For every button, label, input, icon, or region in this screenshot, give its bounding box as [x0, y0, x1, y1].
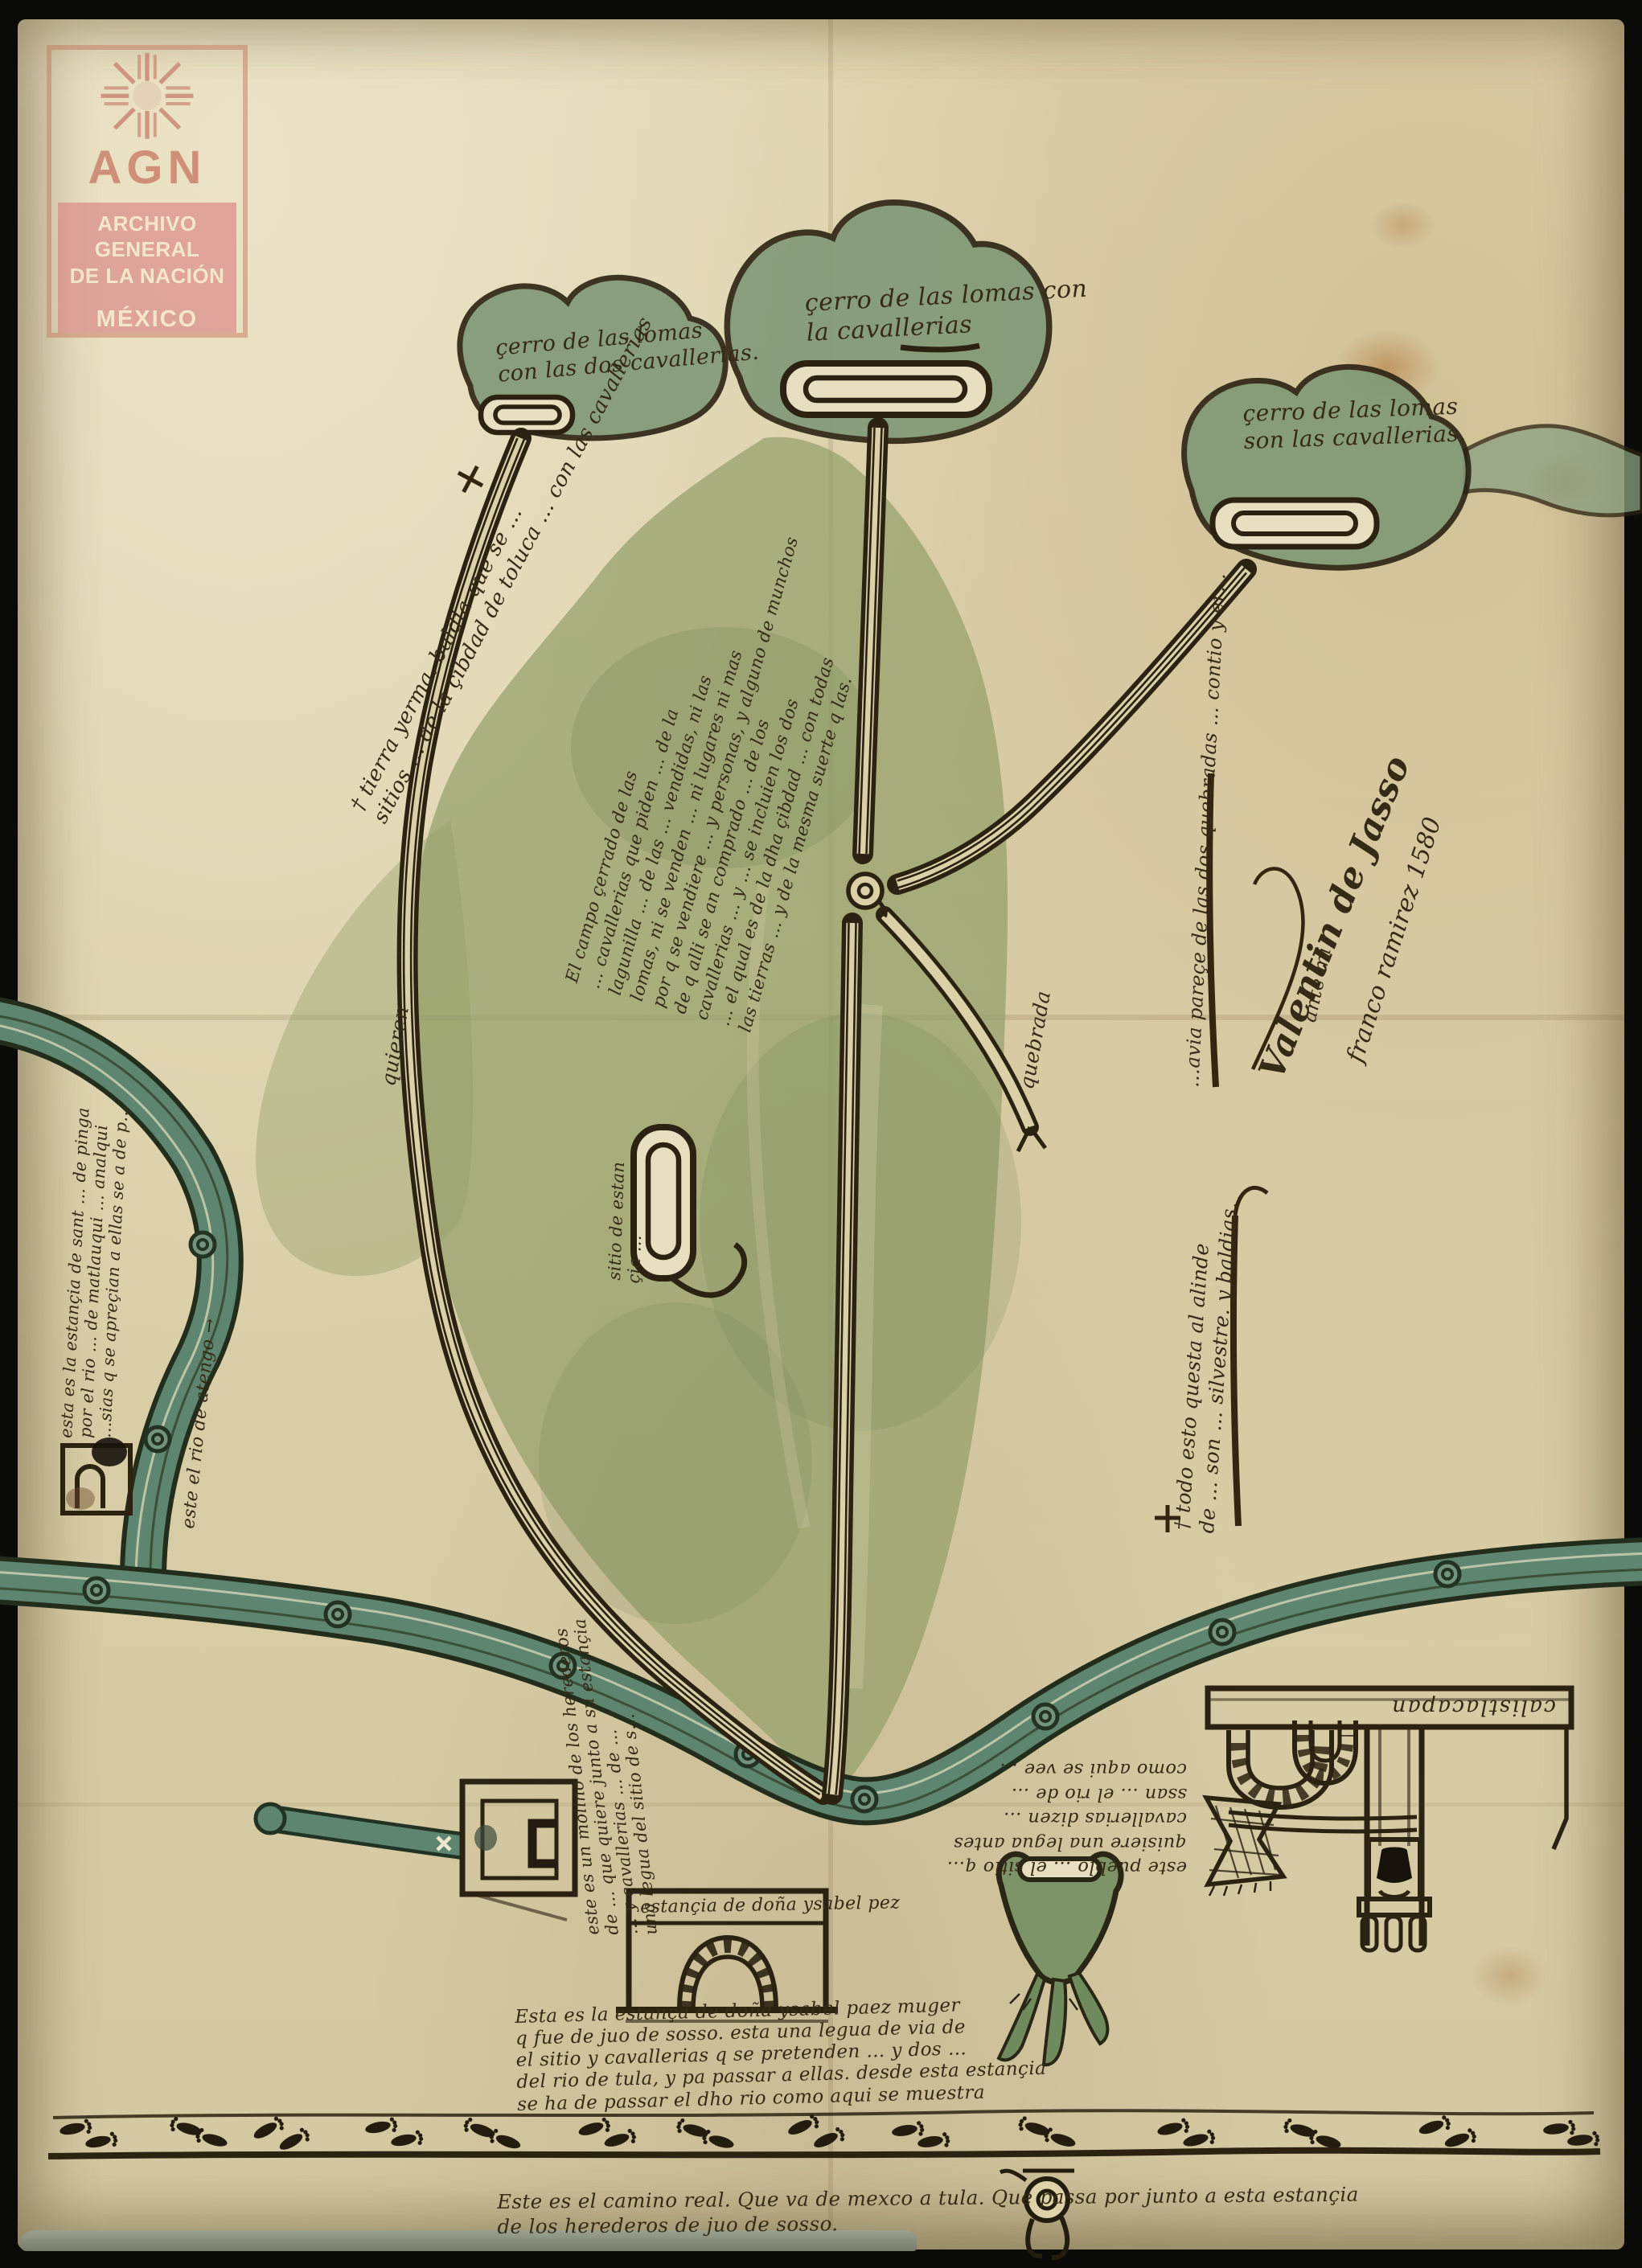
agn-archive-stamp: AGN ARCHIVO GENERAL DE LA NACIÓN MÉXICO — [47, 45, 248, 338]
label-sitio-2: çia … — [624, 1234, 647, 1284]
water-spiral-icon — [1435, 1562, 1459, 1586]
cave-icon — [783, 363, 989, 415]
pueblo-complex-glyph — [1206, 1688, 1571, 1950]
label-place-band: calistlacapan — [1323, 1693, 1556, 1720]
water-spiral-icon — [146, 1427, 170, 1451]
note-line: ssan … el rio de … — [994, 1782, 1187, 1807]
stamp-org-line1: ARCHIVO GENERAL — [58, 211, 236, 263]
water-spiral-icon — [326, 1602, 350, 1626]
ink-blot — [92, 1437, 127, 1466]
water-spiral-icon — [191, 1232, 215, 1257]
cave-icon — [1213, 500, 1377, 547]
note-camino-real: Este es el camino real. Que va de mexco … — [497, 2183, 1359, 2240]
label-venta-caption: estançia de doña ysabel pez — [640, 1894, 821, 1919]
bell-icon — [1377, 1848, 1412, 1884]
note-venta: Esta es la estança de doña ysabel paez m… — [515, 1993, 1047, 2116]
scanned-map-page: çerro de las lomas con las dos cavalleri… — [0, 0, 1642, 2268]
stamp-acronym: AGN — [88, 141, 207, 195]
mill-channel — [256, 1804, 462, 1850]
water-spiral-icon — [84, 1578, 109, 1602]
estancia-building-glyph — [63, 1437, 130, 1513]
stamp-pink-block: ARCHIVO GENERAL DE LA NACIÓN MÉXICO — [58, 203, 236, 334]
note-line: este pueblo … el sitio q… — [994, 1856, 1187, 1880]
note-line: cavallerias dizen … — [994, 1807, 1187, 1831]
note-line: como aqui se vee … — [994, 1757, 1187, 1782]
sun-rays-icon — [87, 50, 207, 142]
door-glyph — [532, 1823, 556, 1864]
note-pueblo-upside-down: este pueblo … el sitio q… quisiere una l… — [994, 1757, 1187, 1880]
water-spiral-icon — [852, 1787, 876, 1811]
note-line: quisiere una legua antes — [994, 1831, 1187, 1855]
stamp-org-line2: DE LA NACIÓN — [70, 263, 225, 289]
label-cerro-right: çerro de las lomas son las cavallerias. — [1242, 392, 1467, 455]
stamp-country: MÉXICO — [96, 306, 198, 333]
water-spiral-icon — [1033, 1704, 1057, 1729]
church-bell-glyph — [1359, 1727, 1430, 1950]
arch-glyph-left — [1229, 1730, 1332, 1807]
water-spiral-icon — [1210, 1620, 1234, 1644]
mill-building-glyph — [462, 1782, 575, 1920]
